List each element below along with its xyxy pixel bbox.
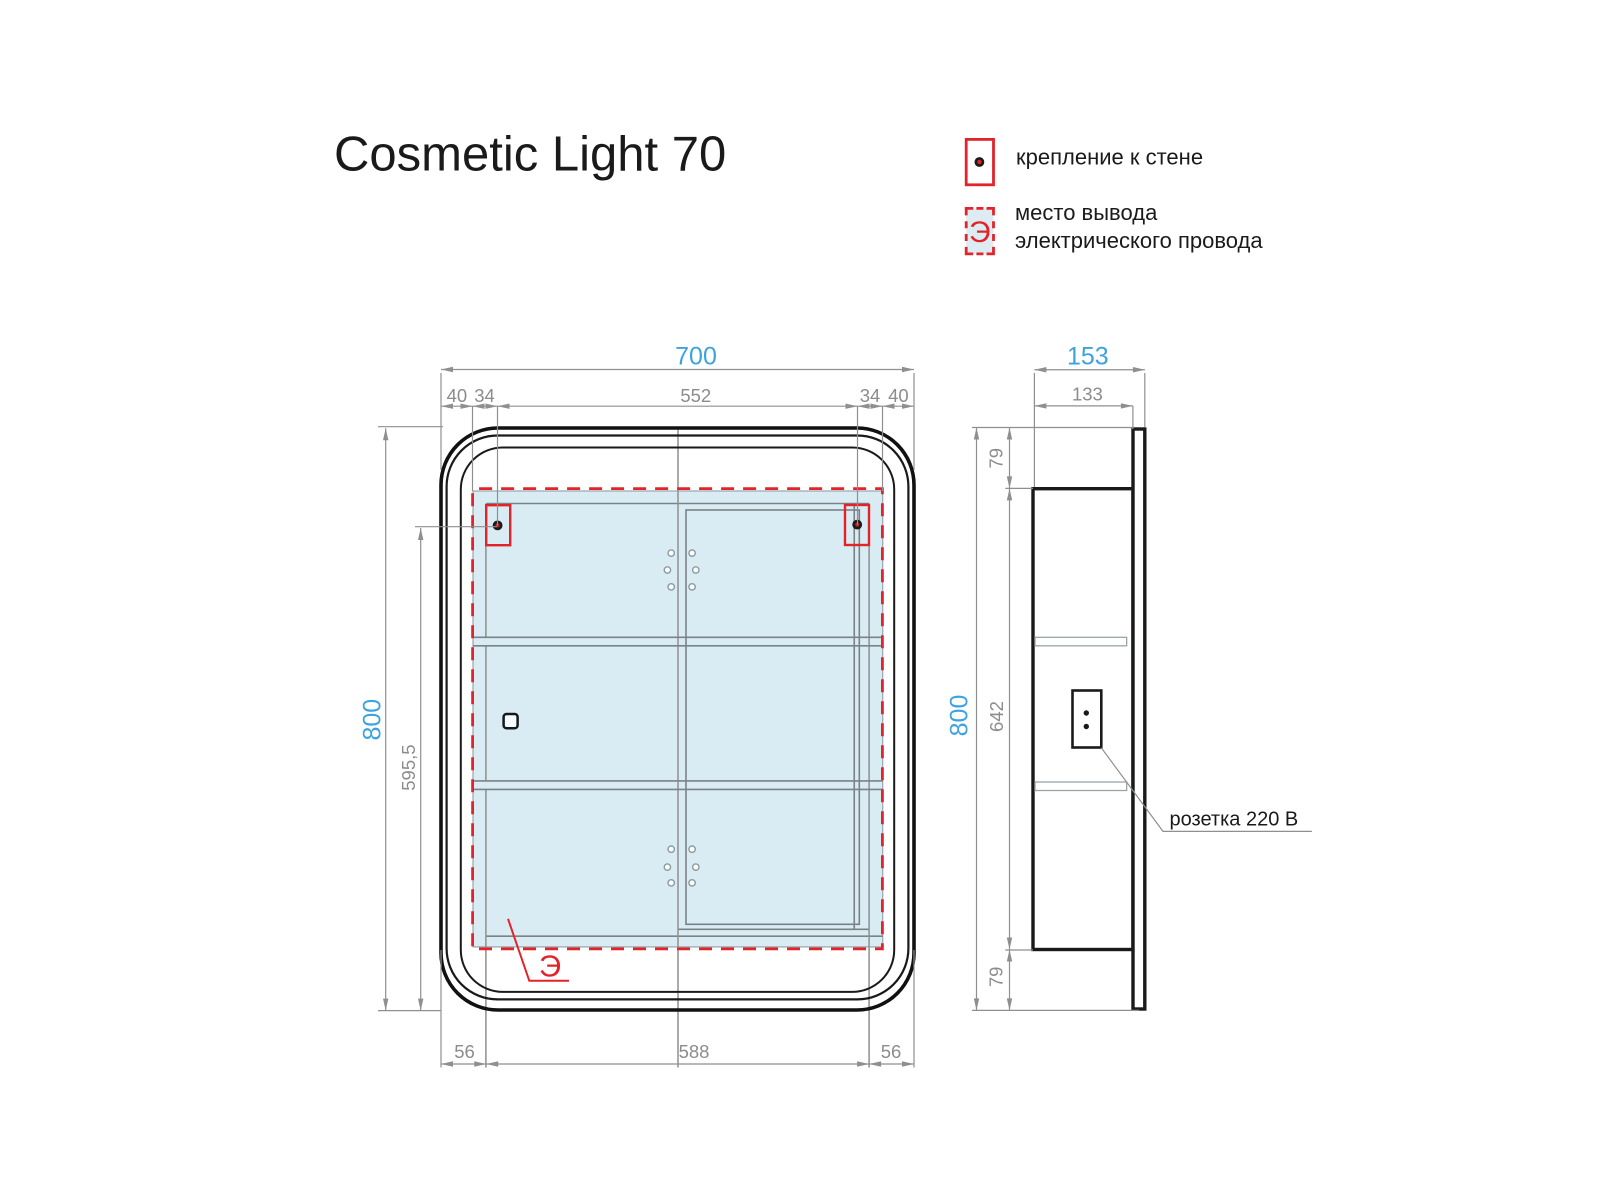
svg-text:700: 700 (675, 343, 717, 371)
svg-text:Э: Э (539, 948, 561, 983)
svg-text:розетка 220 В: розетка 220 В (1170, 809, 1299, 831)
svg-text:крепление к стене: крепление к стене (1016, 145, 1203, 170)
svg-text:40: 40 (888, 385, 909, 406)
svg-text:133: 133 (1072, 384, 1103, 405)
svg-text:642: 642 (986, 701, 1007, 732)
svg-text:место вывода: место вывода (1015, 200, 1158, 225)
svg-text:79: 79 (985, 967, 1006, 988)
svg-text:153: 153 (1067, 343, 1109, 371)
svg-text:595,5: 595,5 (398, 744, 419, 790)
svg-text:электрического провода: электрического провода (1015, 228, 1263, 253)
svg-text:588: 588 (679, 1041, 710, 1062)
svg-text:Э: Э (969, 216, 991, 249)
svg-text:552: 552 (680, 385, 711, 406)
svg-text:34: 34 (474, 385, 495, 406)
svg-text:40: 40 (447, 385, 468, 406)
svg-text:800: 800 (946, 695, 974, 737)
svg-text:34: 34 (860, 385, 881, 406)
svg-text:79: 79 (985, 448, 1006, 469)
svg-text:56: 56 (454, 1041, 475, 1062)
svg-text:Cosmetic Light 70: Cosmetic Light 70 (334, 128, 726, 182)
svg-text:56: 56 (881, 1041, 902, 1062)
svg-text:800: 800 (358, 699, 386, 741)
